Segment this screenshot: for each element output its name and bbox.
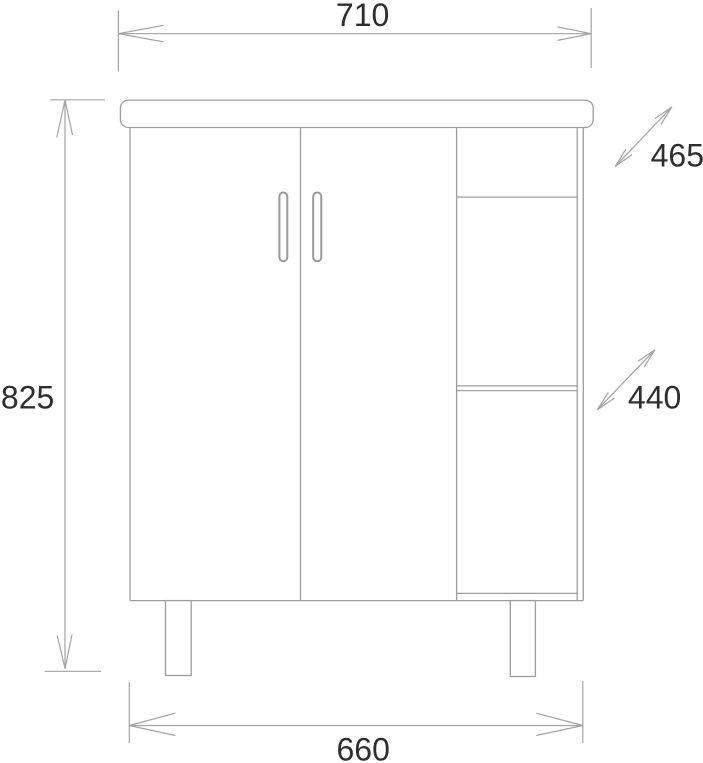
svg-text:465: 465 — [651, 138, 703, 174]
svg-text:710: 710 — [336, 0, 389, 33]
svg-text:440: 440 — [628, 380, 681, 416]
svg-text:660: 660 — [337, 732, 390, 763]
svg-text:825: 825 — [1, 380, 54, 416]
